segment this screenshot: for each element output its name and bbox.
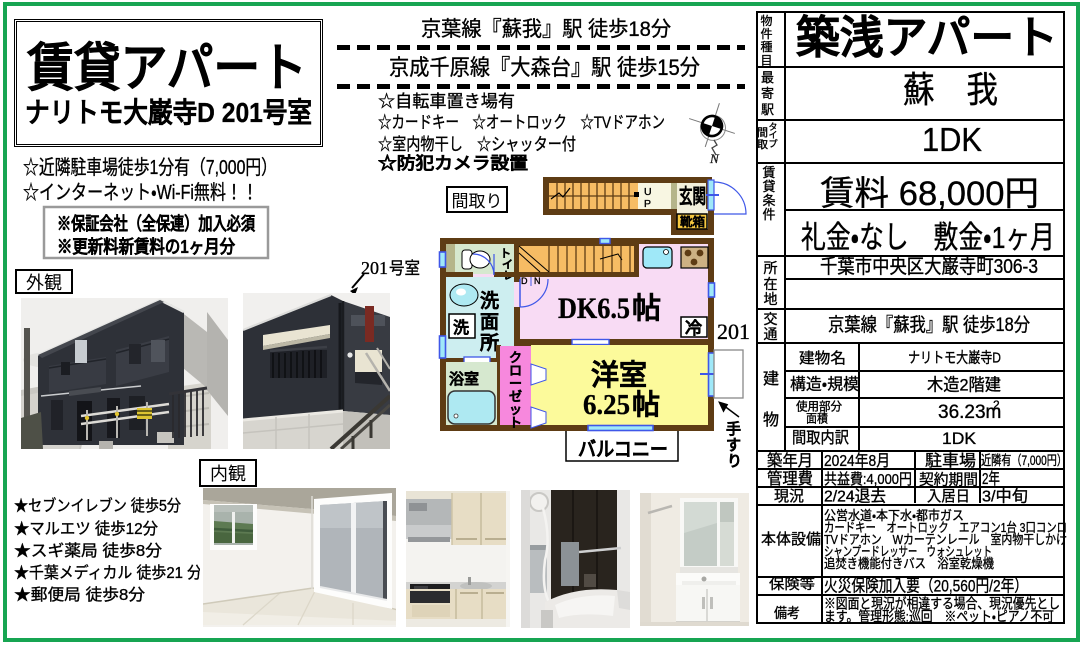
svg-text:近隣有（7,000円）: 近隣有（7,000円） xyxy=(981,453,1067,468)
svg-text:火災保険加入要（20,560円/2年）: 火災保険加入要（20,560円/2年） xyxy=(824,577,1028,596)
svg-text:京葉線『蘇我』駅 徒歩18分: 京葉線『蘇我』駅 徒歩18分 xyxy=(421,18,671,41)
svg-text:礼金・なし 敷金・1ヶ月: 礼金・なし 敷金・1ヶ月 xyxy=(801,220,1055,255)
svg-text:★千葉メディカル 徒歩21 分: ★千葉メディカル 徒歩21 分 xyxy=(14,563,200,582)
svg-text:備考: 備考 xyxy=(774,605,800,621)
svg-text:DK6.5: DK6.5 xyxy=(558,292,630,325)
svg-text:地: 地 xyxy=(764,291,778,307)
svg-text:6.25: 6.25 xyxy=(583,389,630,421)
svg-text:追焚き機能付きバス 浴室乾燥機: 追焚き機能付きバス 浴室乾燥機 xyxy=(824,556,994,571)
svg-text:☆近隣駐車場徒歩1分有（7,000円）: ☆近隣駐車場徒歩1分有（7,000円） xyxy=(23,156,277,179)
svg-text:☆インターネット・Wi-Fi無料！！: ☆インターネット・Wi-Fi無料！！ xyxy=(23,181,258,204)
svg-text:☆室内物干し ☆シャッター付: ☆室内物干し ☆シャッター付 xyxy=(378,135,576,154)
svg-text:P: P xyxy=(644,198,651,210)
svg-text:2024年8月: 2024年8月 xyxy=(824,452,890,470)
svg-text:3/中旬: 3/中旬 xyxy=(982,488,1028,506)
svg-text:靴箱: 靴箱 xyxy=(680,214,705,229)
svg-text:バルコニー: バルコニー xyxy=(578,438,668,461)
svg-text:貸: 貸 xyxy=(763,179,776,194)
svg-text:浴室: 浴室 xyxy=(449,370,479,388)
svg-text:ト: ト xyxy=(509,415,522,430)
svg-text:取: 取 xyxy=(757,139,768,151)
svg-text:間: 間 xyxy=(757,126,768,139)
svg-text:通: 通 xyxy=(764,326,778,342)
svg-text:入居日: 入居日 xyxy=(927,488,970,505)
svg-text:駐車場: 駐車場 xyxy=(925,452,976,470)
svg-text:現況: 現況 xyxy=(774,488,804,505)
svg-text:2: 2 xyxy=(993,398,1000,412)
svg-text:間取内訳: 間取内訳 xyxy=(792,429,849,447)
svg-text:賃貸アパート: 賃貸アパート xyxy=(26,40,307,98)
svg-text:京葉線『蘇我』駅 徒歩18分: 京葉線『蘇我』駅 徒歩18分 xyxy=(828,314,1030,336)
svg-text:契約期間: 契約期間 xyxy=(919,472,978,489)
svg-text:目: 目 xyxy=(761,53,773,67)
svg-text:保険等: 保険等 xyxy=(769,576,815,592)
svg-text:京成千原線『大森台』駅 徒歩15分: 京成千原線『大森台』駅 徒歩15分 xyxy=(389,55,700,80)
svg-text:り: り xyxy=(727,453,742,470)
svg-text:洗: 洗 xyxy=(480,289,499,312)
svg-text:★郵便局 徒歩8分: ★郵便局 徒歩8分 xyxy=(14,586,145,604)
svg-text:寄: 寄 xyxy=(761,86,774,101)
svg-text:面: 面 xyxy=(480,312,499,333)
svg-text:最: 最 xyxy=(761,70,774,85)
svg-text:管理費: 管理費 xyxy=(767,470,813,488)
svg-text:☆カードキー ☆オートロック ☆TVドアホン: ☆カードキー ☆オートロック ☆TVドアホン xyxy=(378,113,665,132)
svg-text:201: 201 xyxy=(717,319,750,344)
svg-text:玄関: 玄関 xyxy=(679,184,706,208)
svg-text:1DK: 1DK xyxy=(942,429,977,448)
svg-text:種: 種 xyxy=(761,40,773,54)
svg-text:ます。管理形態:巡回 ※ペット・ピアノ不可: ます。管理形態:巡回 ※ペット・ピアノ不可 xyxy=(824,609,1054,625)
svg-text:帖: 帖 xyxy=(632,389,660,420)
svg-text:賃料 68,000円: 賃料 68,000円 xyxy=(820,175,1039,213)
svg-text:36.23m: 36.23m xyxy=(938,402,1001,423)
svg-text:木造2階建: 木造2階建 xyxy=(927,376,1001,395)
svg-text:賃: 賃 xyxy=(763,165,776,180)
svg-text:冷: 冷 xyxy=(685,319,703,338)
svg-text:面積: 面積 xyxy=(806,411,828,426)
svg-text:件: 件 xyxy=(761,27,773,41)
svg-text:共益費:4,000円: 共益費:4,000円 xyxy=(824,471,912,488)
svg-text:件: 件 xyxy=(763,207,776,222)
svg-text:千葉市中央区大巌寺町306-3: 千葉市中央区大巌寺町306-3 xyxy=(820,255,1038,278)
svg-text:物: 物 xyxy=(763,411,779,429)
svg-text:所: 所 xyxy=(764,260,778,276)
svg-text:条: 条 xyxy=(763,193,776,208)
svg-text:蘇 我: 蘇 我 xyxy=(903,69,998,110)
svg-text:す: す xyxy=(726,437,741,454)
svg-text:帖: 帖 xyxy=(632,292,661,325)
svg-text:N: N xyxy=(534,276,541,286)
svg-text:☆自転車置き場有: ☆自転車置き場有 xyxy=(378,92,515,111)
svg-text:建物名: 建物名 xyxy=(799,350,846,367)
svg-text:U: U xyxy=(644,186,652,198)
svg-text:★スギ薬局 徒歩8分: ★スギ薬局 徒歩8分 xyxy=(14,542,162,560)
svg-text:ナリトモ大巌寺D: ナリトモ大巌寺D xyxy=(908,350,1001,367)
svg-text:本体設備: 本体設備 xyxy=(761,531,821,548)
svg-text:※保証会社（全保連）加入必須: ※保証会社（全保連）加入必須 xyxy=(57,213,256,234)
svg-text:2/24退去: 2/24退去 xyxy=(824,488,886,506)
svg-text:洗: 洗 xyxy=(453,318,469,337)
svg-text:N: N xyxy=(709,151,720,166)
svg-text:プ: プ xyxy=(769,139,778,149)
svg-text:在: 在 xyxy=(764,276,778,292)
svg-text:手: 手 xyxy=(726,420,741,438)
svg-text:洋室: 洋室 xyxy=(591,359,647,392)
svg-text:構造・規模: 構造・規模 xyxy=(790,376,859,394)
svg-text:D: D xyxy=(521,276,528,286)
svg-text:2年: 2年 xyxy=(982,470,1000,488)
svg-text:築年月: 築年月 xyxy=(767,452,813,470)
svg-text:駅: 駅 xyxy=(761,102,774,117)
svg-text:物: 物 xyxy=(761,14,773,28)
svg-text:交: 交 xyxy=(764,311,778,327)
svg-text:※更新料新賃料の1ヶ月分: ※更新料新賃料の1ヶ月分 xyxy=(57,236,236,257)
svg-text:★セブンイレブン 徒歩5分: ★セブンイレブン 徒歩5分 xyxy=(14,496,181,515)
svg-text:1DK: 1DK xyxy=(922,121,982,158)
svg-text:建: 建 xyxy=(763,370,779,388)
svg-text:築浅アパート: 築浅アパート xyxy=(796,12,1058,63)
svg-text:ナリトモ大巌寺D 201号室: ナリトモ大巌寺D 201号室 xyxy=(25,97,312,128)
svg-text:号室: 号室 xyxy=(389,259,420,278)
svg-text:★マルエツ 徒歩12分: ★マルエツ 徒歩12分 xyxy=(14,520,158,538)
